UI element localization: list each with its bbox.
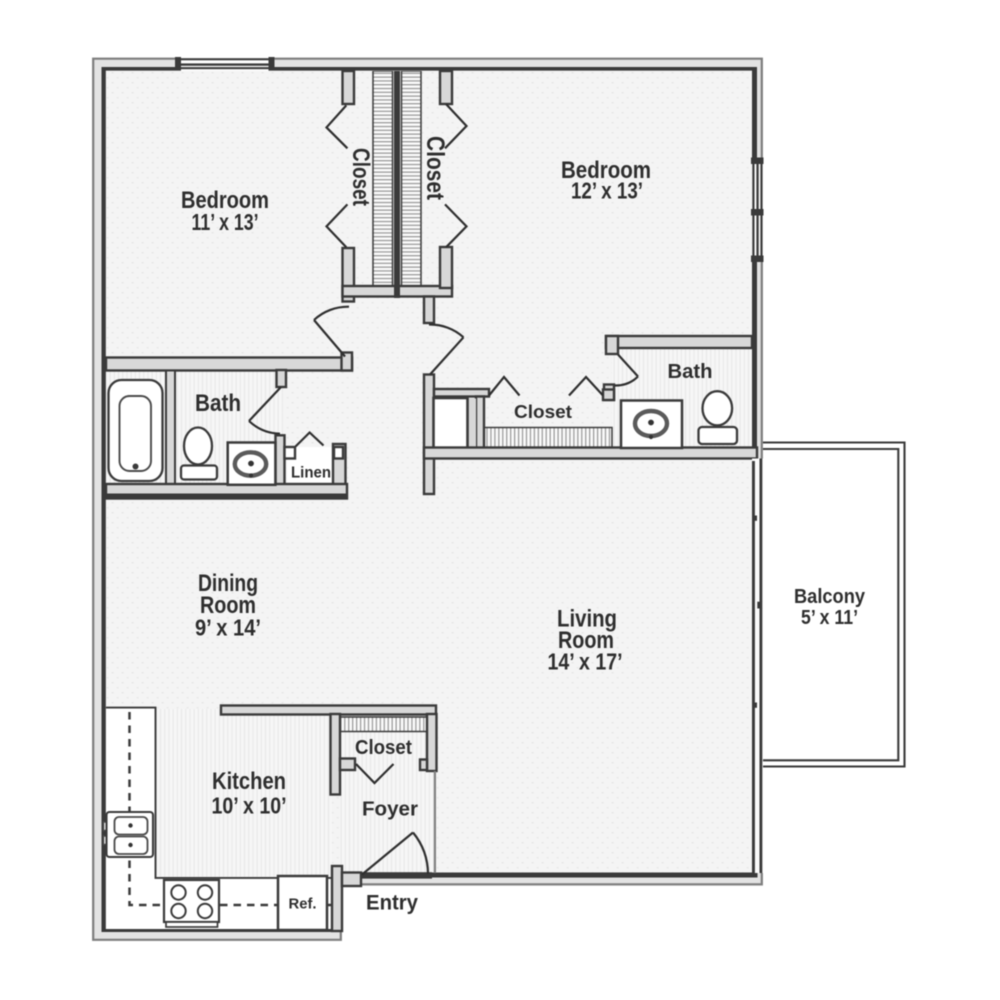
svg-text:14’ x 17’: 14’ x 17’ <box>548 649 623 675</box>
svg-text:Balcony: Balcony <box>794 585 866 608</box>
svg-text:Kitchen: Kitchen <box>212 768 286 795</box>
svg-text:Closet: Closet <box>421 136 449 201</box>
svg-text:Bath: Bath <box>195 390 241 417</box>
svg-text:10’ x 10’: 10’ x 10’ <box>212 793 287 819</box>
svg-text:9’ x 14’: 9’ x 14’ <box>195 615 261 641</box>
svg-text:Closet: Closet <box>514 402 572 422</box>
svg-text:5’ x 11’: 5’ x 11’ <box>801 607 858 629</box>
svg-text:Foyer: Foyer <box>362 798 418 821</box>
svg-text:Closet: Closet <box>355 737 412 759</box>
svg-text:Entry: Entry <box>366 892 418 915</box>
svg-text:Linen: Linen <box>291 465 331 482</box>
svg-text:12’ x 13’: 12’ x 13’ <box>571 178 643 204</box>
svg-text:Bath: Bath <box>668 361 713 383</box>
svg-text:11’ x 13’: 11’ x 13’ <box>192 209 259 235</box>
svg-text:Ref.: Ref. <box>289 896 317 913</box>
svg-text:Closet: Closet <box>347 148 374 206</box>
